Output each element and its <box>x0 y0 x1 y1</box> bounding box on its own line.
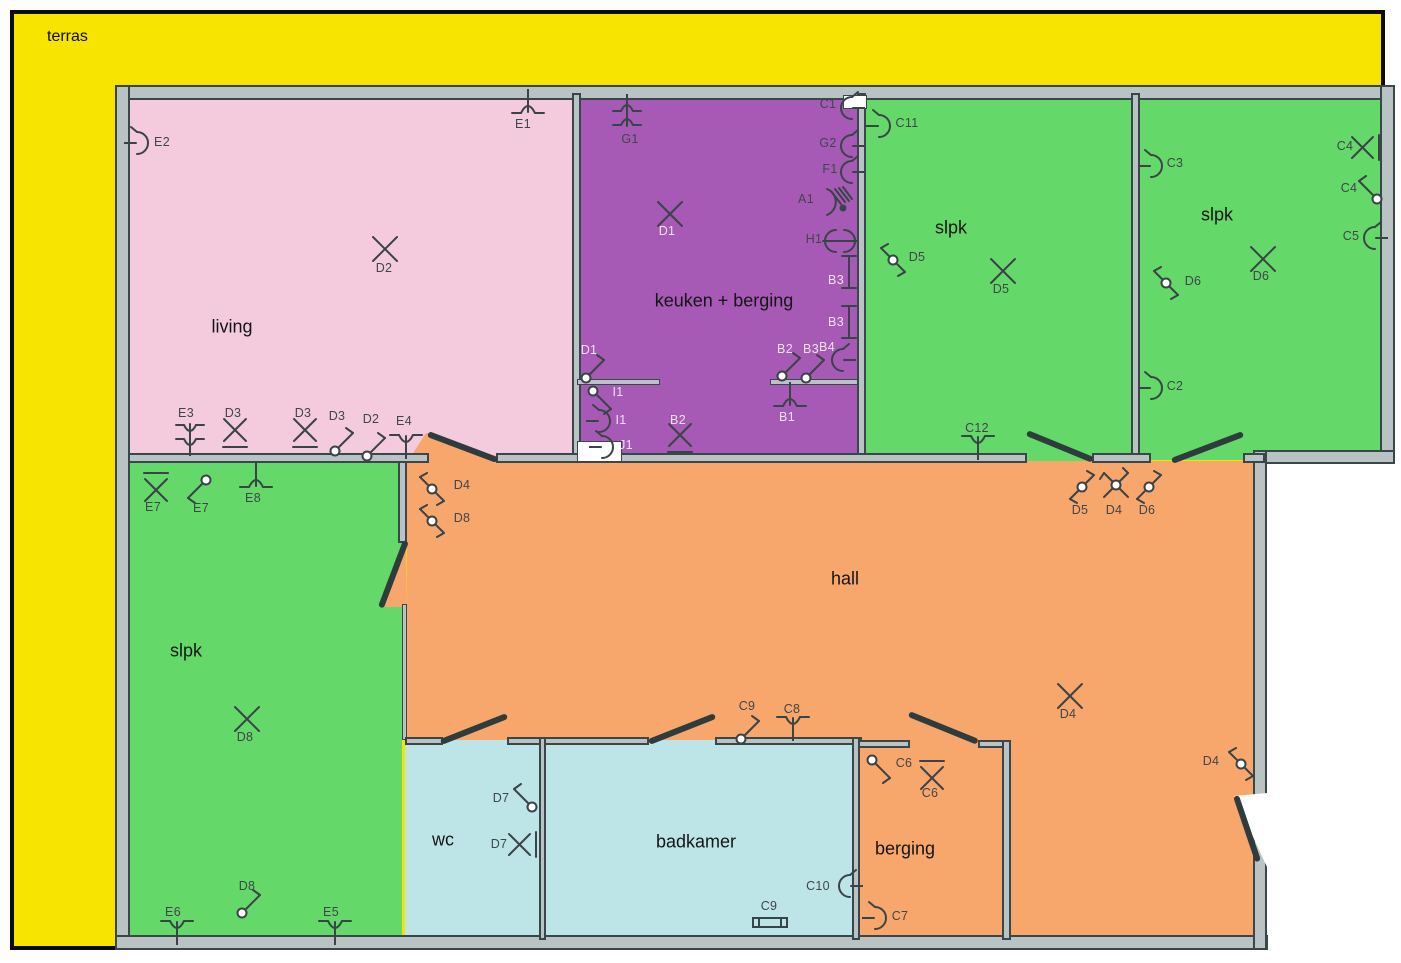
symbol-label-d4: D4 <box>454 478 471 492</box>
symbol-label-e7: E7 <box>193 501 209 515</box>
symbol-label-d7: D7 <box>491 837 508 851</box>
symbol-label-e8: E8 <box>245 491 261 505</box>
symbol-label-g1: G1 <box>621 132 638 146</box>
symbol-label-d4: D4 <box>1106 503 1123 517</box>
symbol-label-e2: E2 <box>154 135 170 149</box>
symbol-label-c4: C4 <box>1341 181 1358 195</box>
symbol-label-d8: D8 <box>454 511 471 525</box>
floor-plan-canvas: terras E1E2D2E3D3D3D3D2E4E7E7E8D8D8E6E5G… <box>0 0 1401 963</box>
symbol-label-e4: E4 <box>396 414 412 428</box>
symbol-label-d1: D1 <box>581 343 598 357</box>
room-label-hall-top: hall <box>831 569 859 590</box>
symbol-label-d3: D3 <box>225 406 242 420</box>
symbol-label-f1: F1 <box>822 162 837 176</box>
symbol-label-d6: D6 <box>1253 269 1270 283</box>
symbol-label-c12: C12 <box>965 421 989 435</box>
symbol-label-c9: C9 <box>739 699 756 713</box>
room-label-wc: wc <box>432 830 454 851</box>
symbol-label-c11: C11 <box>896 116 919 130</box>
symbol-label-i1: I1 <box>615 413 626 427</box>
symbol-label-d1: D1 <box>659 224 676 238</box>
symbol-label-d3: D3 <box>295 406 312 420</box>
symbol-label-c10: C10 <box>806 879 830 893</box>
room-label-slpk-3: slpk <box>170 641 202 662</box>
symbol-label-d3: D3 <box>329 409 346 423</box>
symbol-label-d5: D5 <box>909 250 926 264</box>
symbol-label-e6: E6 <box>165 905 181 919</box>
room-label-berging: berging <box>875 839 935 860</box>
symbol-label-e1: E1 <box>515 117 531 131</box>
symbol-label-i1: I1 <box>612 385 623 399</box>
symbol-label-c1: C1 <box>820 97 837 111</box>
room-label-slpk-1: slpk <box>935 218 967 239</box>
symbol-label-d2: D2 <box>363 412 380 426</box>
room-label-slpk-2: slpk <box>1201 205 1233 226</box>
symbol-label-c9: C9 <box>761 899 778 913</box>
symbol-label-b3: B3 <box>803 342 819 356</box>
symbol-label-c6: C6 <box>896 756 913 770</box>
symbol-label-d4: D4 <box>1060 707 1077 721</box>
symbol-label-b1: B1 <box>779 410 795 424</box>
symbol-label-d6: D6 <box>1185 274 1202 288</box>
room-label-living: living <box>211 317 252 338</box>
labels-layer: E1E2D2E3D3D3D3D2E4E7E7E8D8D8E6E5G1D1C1G2… <box>0 0 1401 963</box>
symbol-label-d6: D6 <box>1139 503 1156 517</box>
symbol-label-d5: D5 <box>993 282 1010 296</box>
symbol-label-e5: E5 <box>323 905 339 919</box>
symbol-label-b4: B4 <box>819 340 835 354</box>
symbol-label-c8: C8 <box>784 702 801 716</box>
symbol-label-c4: C4 <box>1337 139 1354 153</box>
symbol-label-d5: D5 <box>1072 503 1089 517</box>
symbol-label-e7: E7 <box>145 500 161 514</box>
symbol-label-b2: B2 <box>670 413 686 427</box>
symbol-label-a1: A1 <box>798 192 814 206</box>
symbol-label-c7: C7 <box>892 909 909 923</box>
symbol-label-d7: D7 <box>493 791 510 805</box>
symbol-label-b3: B3 <box>828 315 844 329</box>
symbol-label-c6: C6 <box>922 786 939 800</box>
symbol-label-c2: C2 <box>1167 379 1184 393</box>
symbol-label-d4: D4 <box>1203 754 1220 768</box>
symbol-label-d2: D2 <box>376 261 393 275</box>
symbol-label-e3: E3 <box>178 406 194 420</box>
room-label-badkamer: badkamer <box>656 832 736 853</box>
symbol-label-d8: D8 <box>239 879 256 893</box>
symbol-label-g2: G2 <box>819 136 836 150</box>
room-label-keuken: keuken + berging <box>655 291 794 312</box>
symbol-label-d8: D8 <box>237 730 254 744</box>
symbol-label-b2: B2 <box>777 342 793 356</box>
symbol-label-h1: H1 <box>806 232 823 246</box>
symbol-label-c5: C5 <box>1343 229 1360 243</box>
symbol-label-b3: B3 <box>828 273 844 287</box>
symbol-label-j1: J1 <box>619 438 633 452</box>
symbol-label-c3: C3 <box>1167 156 1184 170</box>
